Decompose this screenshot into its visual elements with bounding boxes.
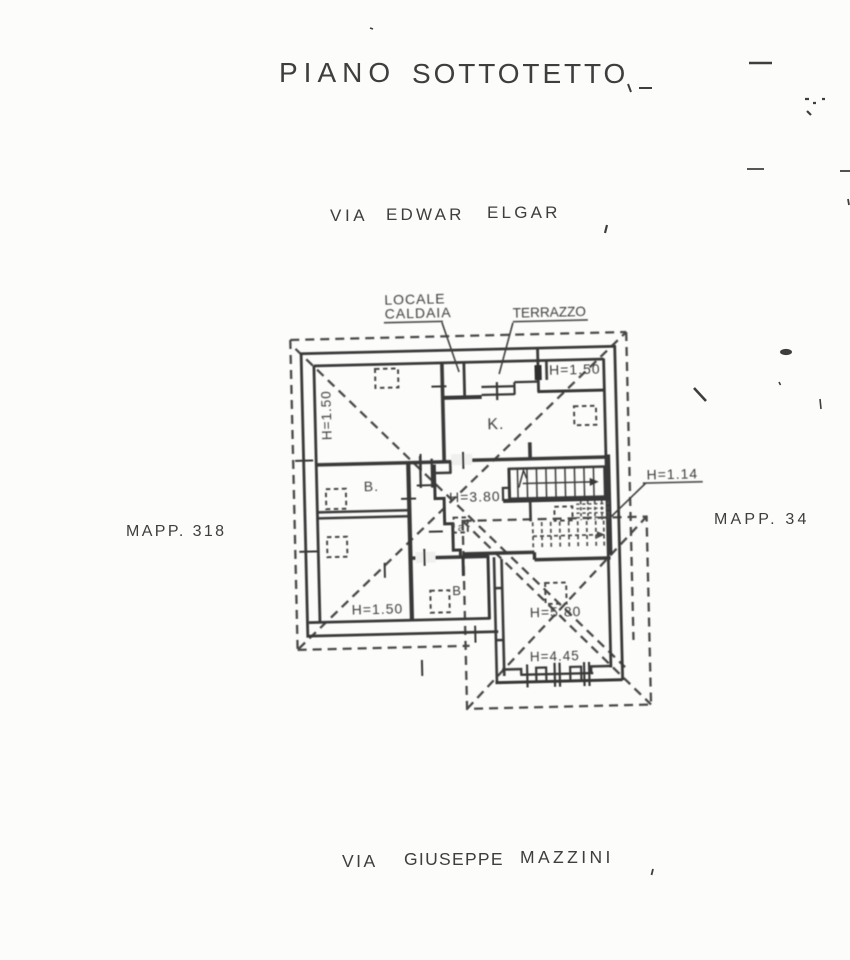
- svg-text:MAZZINI: MAZZINI: [520, 847, 614, 867]
- svg-text:H=1.14: H=1.14: [646, 465, 698, 482]
- svg-text:TERRAZZO: TERRAZZO: [513, 304, 587, 321]
- svg-text:H=5.80: H=5.80: [530, 603, 582, 620]
- svg-text:VIA: VIA: [330, 206, 368, 225]
- svg-text:ELGAR: ELGAR: [487, 203, 561, 222]
- svg-text:B: B: [452, 583, 462, 598]
- svg-text:MAPP. 318: MAPP. 318: [126, 523, 226, 540]
- svg-text:K.: K.: [487, 416, 505, 433]
- svg-text:H=4.45: H=4.45: [530, 648, 580, 664]
- svg-text:PIANO: PIANO: [279, 57, 396, 88]
- svg-text:EDWAR: EDWAR: [386, 205, 465, 224]
- svg-text:SOTTOTETTO: SOTTOTETTO: [412, 58, 628, 89]
- svg-text:H=3.80: H=3.80: [449, 488, 501, 505]
- svg-text:CALDAIA: CALDAIA: [384, 304, 451, 322]
- svg-text:MAPP. 34: MAPP. 34: [714, 511, 810, 528]
- svg-text:H=1.50: H=1.50: [318, 390, 334, 440]
- svg-text:H=1.50: H=1.50: [351, 600, 403, 617]
- svg-text:H=1.50: H=1.50: [549, 361, 601, 378]
- svg-text:GIUSEPPE: GIUSEPPE: [404, 849, 504, 869]
- svg-text:B.: B.: [364, 478, 380, 494]
- svg-text:VIA: VIA: [342, 851, 378, 871]
